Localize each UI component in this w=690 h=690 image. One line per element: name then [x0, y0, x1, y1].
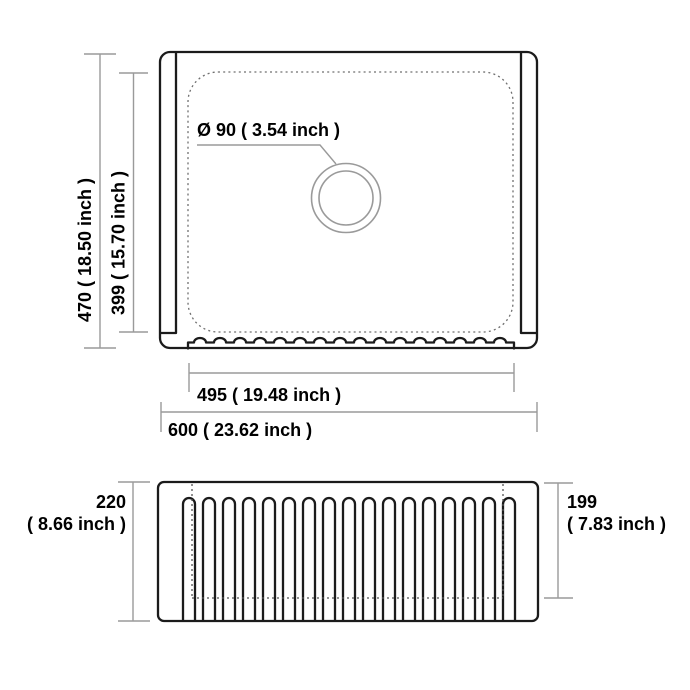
bowl-dashed-outline — [188, 72, 513, 332]
bowl-depth-label: 399 ( 15.70 inch ) — [109, 171, 129, 315]
bowl-height-value: 199 — [567, 492, 597, 512]
apron-rib — [263, 498, 275, 620]
outer-depth-label: 470 ( 18.50 inch ) — [75, 178, 95, 322]
dimension-drawing: Ø 90 ( 3.54 inch ) 470 ( 18.50 inch ) 39… — [0, 0, 690, 690]
overall-height-value: 220 — [96, 492, 126, 512]
apron-rib — [223, 498, 235, 620]
apron-rib — [463, 498, 475, 620]
apron-rib — [383, 498, 395, 620]
apron-rib — [403, 498, 415, 620]
overall-width-label: 600 ( 23.62 inch ) — [168, 420, 312, 440]
apron-rib — [423, 498, 435, 620]
apron-rib — [323, 498, 335, 620]
apron-ribs — [183, 498, 515, 620]
drain-leader-line — [197, 145, 336, 164]
apron-rib — [283, 498, 295, 620]
apron-rib — [443, 498, 455, 620]
apron-rib — [183, 498, 195, 620]
apron-rib — [343, 498, 355, 620]
left-flange-line — [161, 53, 176, 333]
overall-height-inch: ( 8.66 inch ) — [27, 514, 126, 534]
front-view: 220 ( 8.66 inch ) 199 ( 7.83 inch ) — [27, 482, 666, 621]
drain-diameter-label: Ø 90 ( 3.54 inch ) — [197, 120, 340, 140]
top-view: Ø 90 ( 3.54 inch ) 470 ( 18.50 inch ) 39… — [75, 52, 537, 440]
apron-rib — [483, 498, 495, 620]
apron-rib — [303, 498, 315, 620]
sink-drawing-svg: Ø 90 ( 3.54 inch ) 470 ( 18.50 inch ) 39… — [0, 0, 690, 690]
drain-outer-circle — [312, 164, 381, 233]
sink-outer-rim — [160, 52, 537, 348]
bowl-height-inch: ( 7.83 inch ) — [567, 514, 666, 534]
drain-inner-circle — [319, 171, 373, 225]
apron-rib — [363, 498, 375, 620]
bowl-width-label: 495 ( 19.48 inch ) — [197, 385, 341, 405]
apron-rib — [203, 498, 215, 620]
right-flange-line — [521, 53, 536, 333]
apron-rib — [503, 498, 515, 620]
apron-rib — [243, 498, 255, 620]
